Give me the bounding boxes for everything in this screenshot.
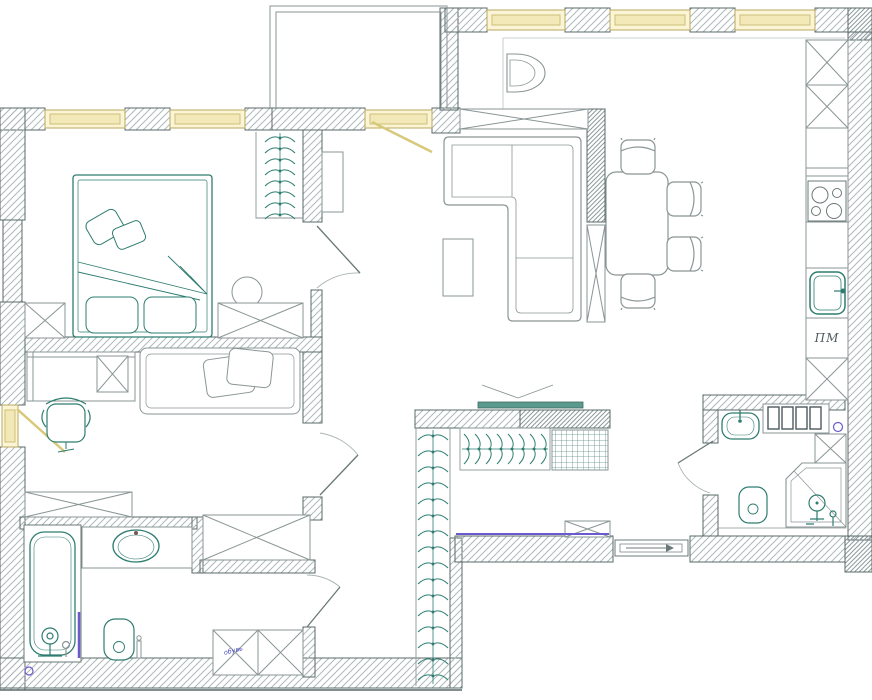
entry-wardrobe-rail-vertical (416, 428, 450, 686)
wardrobe-rail-bedroom (256, 132, 303, 219)
bath2-door (678, 441, 713, 493)
radiator (763, 404, 829, 433)
kitchen-sink (810, 272, 846, 314)
bath2-cabinet (815, 434, 846, 463)
bathtub (24, 525, 81, 662)
valve-mark (834, 423, 843, 432)
window (610, 10, 690, 30)
dining-chair (667, 182, 703, 216)
daybed (140, 348, 300, 414)
toilet (104, 619, 134, 660)
window (365, 110, 432, 128)
desk (27, 352, 135, 401)
zone-lines (503, 38, 845, 110)
floor-plan: ПМ (0, 0, 872, 700)
floor-plan-sheet: ПМ (0, 0, 872, 700)
window (170, 110, 245, 128)
armchair (507, 54, 545, 92)
window (487, 10, 565, 30)
wall-tv (478, 385, 583, 408)
tv-stand-cabinet (460, 109, 588, 129)
niche-cabinet (203, 515, 310, 560)
corner-shower (786, 463, 846, 527)
shelf-unit (552, 430, 608, 470)
toilet-brush (137, 636, 141, 658)
vanity-counter (82, 527, 192, 568)
wardrobe-cabinet (25, 492, 132, 517)
washbasin (722, 410, 759, 439)
office-door (320, 433, 358, 495)
window (735, 10, 815, 30)
dishwasher-label: ПМ (814, 331, 840, 345)
coffee-table (443, 239, 473, 296)
hob-4-burners (808, 181, 846, 221)
office-chair (42, 398, 90, 452)
hall-door (307, 575, 340, 627)
window (45, 110, 125, 128)
entrance-door (615, 540, 688, 556)
dining-table (606, 172, 668, 275)
kitchen (806, 40, 848, 400)
window (2, 405, 18, 447)
partition-cabinet (587, 225, 605, 322)
dining-chair (621, 138, 655, 174)
entry-wardrobe-rail-horizontal (460, 428, 550, 470)
balcony (270, 6, 447, 108)
hallway: обувь (203, 428, 688, 686)
toilet-2 (739, 487, 767, 523)
double-bed (73, 175, 212, 337)
dining-area (606, 138, 703, 310)
dining-chair (667, 237, 703, 271)
dining-chair (621, 274, 655, 310)
bedroom-door (317, 226, 360, 288)
dresser (322, 152, 343, 212)
bathroom-main (24, 525, 192, 675)
walls (0, 8, 872, 690)
